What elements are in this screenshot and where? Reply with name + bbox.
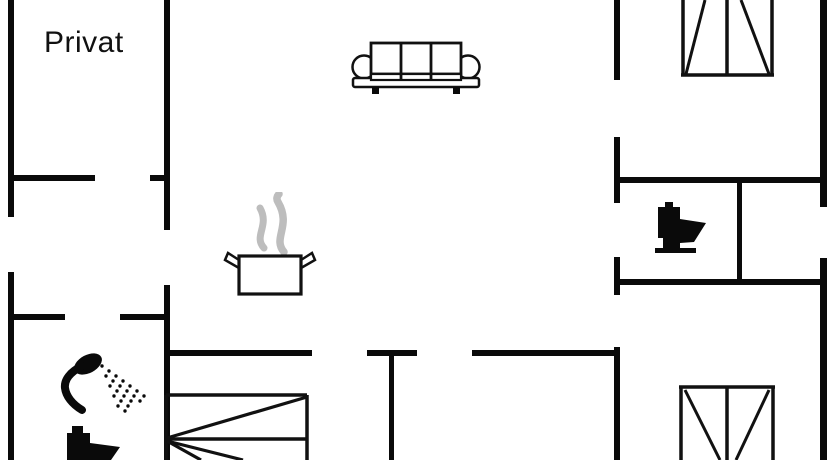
wall-segment xyxy=(737,180,742,283)
wall-segment xyxy=(8,272,14,460)
wall-segment xyxy=(614,347,620,460)
toilet-icon-right xyxy=(650,200,710,260)
shower-icon xyxy=(52,350,167,422)
steam-icon xyxy=(277,194,284,252)
wall-segment xyxy=(389,353,394,460)
wardrobe-door-diagonal xyxy=(686,0,705,74)
wall-segment xyxy=(8,175,95,181)
sofa-icon xyxy=(350,38,482,96)
wall-segment xyxy=(614,137,620,203)
bed-diagonal xyxy=(167,397,307,438)
wall-segment xyxy=(614,279,827,285)
wall-segment xyxy=(8,0,14,217)
wall-segment xyxy=(367,350,417,356)
toilet-silhouette xyxy=(655,202,706,253)
wall-segment xyxy=(614,0,620,80)
wall-segment xyxy=(8,314,65,320)
shower-head xyxy=(71,350,106,379)
floor-plan: Privat xyxy=(0,0,834,460)
steam-icon xyxy=(260,208,264,248)
wall-segment xyxy=(472,350,620,356)
bunk-bed-icon xyxy=(163,392,310,460)
wall-segment xyxy=(164,0,170,230)
cooking-pot-icon xyxy=(222,192,322,304)
room-label-private: Privat xyxy=(44,26,124,60)
sofa-seat xyxy=(371,74,461,80)
wall-segment xyxy=(614,177,827,183)
wardrobe-door-diagonal xyxy=(736,390,769,460)
toilet-silhouette xyxy=(67,426,120,460)
wardrobe-icon-bottom-right xyxy=(679,385,775,460)
bed-diagonal xyxy=(167,441,243,460)
wall-segment xyxy=(150,175,170,181)
wall-segment xyxy=(820,258,827,460)
wall-segment xyxy=(164,350,312,356)
shower-spray xyxy=(100,364,145,412)
sofa-backrest xyxy=(371,43,461,74)
wall-segment xyxy=(820,0,827,207)
wall-segment xyxy=(614,257,620,295)
pot-handle xyxy=(225,253,239,268)
toilet-icon-bottom-left xyxy=(58,422,128,460)
wardrobe-icon-top-right xyxy=(681,0,774,78)
pot-body xyxy=(239,256,301,294)
sofa-foot xyxy=(372,87,379,94)
wardrobe-door-diagonal xyxy=(741,0,769,74)
sofa-foot xyxy=(453,87,460,94)
pot-handle xyxy=(301,253,315,268)
wardrobe-door-diagonal xyxy=(685,390,720,460)
wall-segment xyxy=(120,314,170,320)
